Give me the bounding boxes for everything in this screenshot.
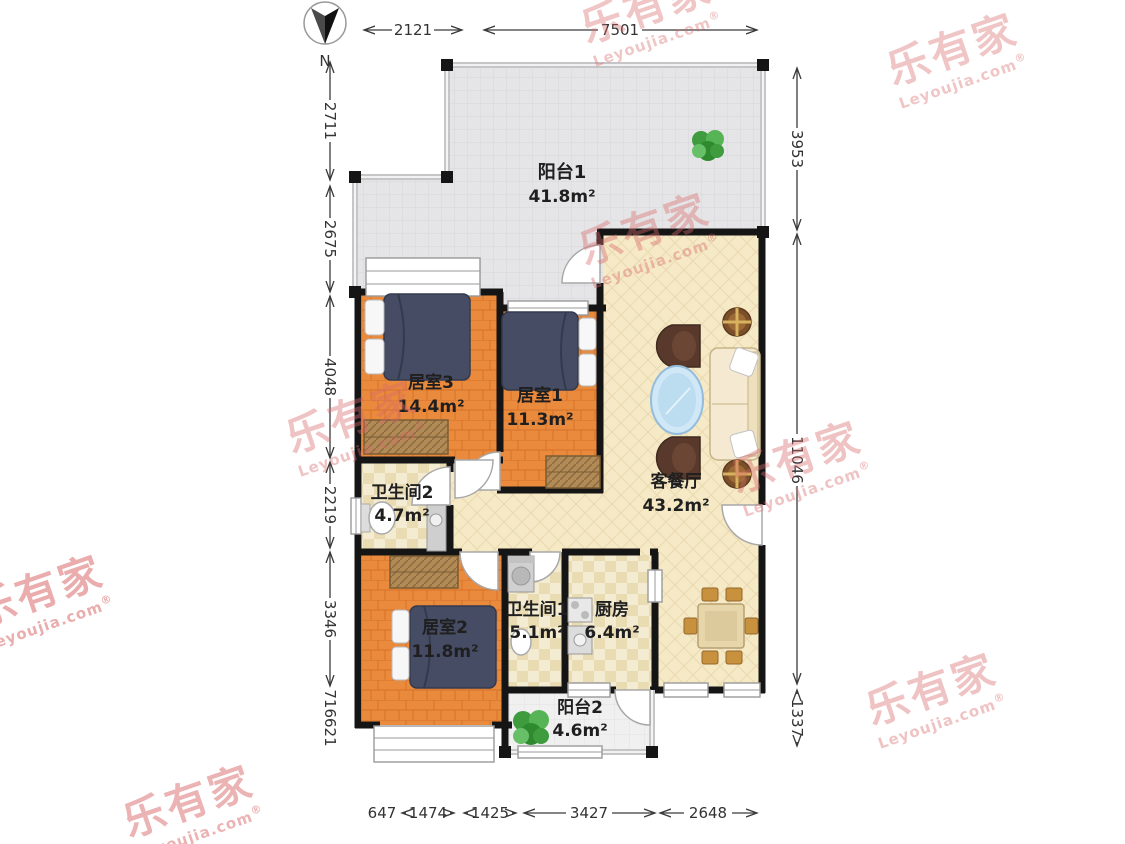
room-area: 4.6m² xyxy=(552,721,607,741)
compass-icon xyxy=(304,2,346,44)
dim-label: 4048 xyxy=(321,358,339,396)
side-table xyxy=(723,308,751,336)
potted-plant-icon xyxy=(513,710,549,745)
dining-chair xyxy=(702,651,718,664)
window xyxy=(648,570,662,602)
dim-label: 3953 xyxy=(788,130,806,168)
dim-label: 716621 xyxy=(321,689,339,746)
room-area: 6.4m² xyxy=(584,623,639,643)
armchair xyxy=(657,325,700,367)
window xyxy=(518,746,602,758)
window xyxy=(664,683,708,697)
room-area: 41.8m² xyxy=(528,187,595,207)
sofa xyxy=(710,347,760,460)
dim-label: 3427 xyxy=(570,804,608,822)
room-area: 11.3m² xyxy=(506,410,573,430)
bay-window xyxy=(366,258,480,296)
bathroom-vanity xyxy=(427,505,446,551)
floorplan-page: N 2121 7501 2711 2675 4048 2219 3346 716… xyxy=(0,0,1125,844)
dim-label: 2219 xyxy=(321,486,339,524)
dim-label: 1425 xyxy=(471,804,509,822)
window xyxy=(568,683,610,697)
dining-chair xyxy=(684,618,697,634)
floorplan-drawing: N 2121 7501 2711 2675 4048 2219 3346 716… xyxy=(0,0,1125,844)
room-name: 卫生间1 xyxy=(506,599,569,620)
dimensions-left: 2711 2675 4048 2219 3346 716621 xyxy=(321,62,339,747)
room-area: 11.8m² xyxy=(411,642,478,662)
side-table xyxy=(723,460,751,488)
dim-label: 2121 xyxy=(394,21,432,39)
dim-label: 7501 xyxy=(601,21,639,39)
room-area: 5.1m² xyxy=(509,623,564,643)
dim-label: 11046 xyxy=(788,436,806,484)
room-area: 43.2m² xyxy=(642,496,709,516)
dim-label: 2711 xyxy=(321,102,339,140)
dimensions-top: 2121 7501 xyxy=(364,21,757,39)
dining-chair xyxy=(726,588,742,601)
dim-label: 647 xyxy=(368,804,397,822)
north-label: N xyxy=(319,52,330,70)
dim-label: 1474 xyxy=(409,804,447,822)
dimensions-bottom: 647 1474 1425 3427 2648 xyxy=(368,804,757,822)
wardrobe xyxy=(390,556,458,588)
room-name: 阳台2 xyxy=(557,697,603,718)
room-area: 4.7m² xyxy=(374,506,429,526)
window xyxy=(351,498,361,534)
dining-chair xyxy=(726,651,742,664)
dim-label: 3346 xyxy=(321,600,339,638)
room-name: 客餐厅 xyxy=(650,471,702,492)
wardrobe xyxy=(364,420,448,454)
potted-plant-icon xyxy=(692,130,724,161)
room-name: 居室1 xyxy=(517,385,563,406)
room-name: 居室2 xyxy=(422,617,468,638)
stove xyxy=(568,598,592,622)
dim-label: 2675 xyxy=(321,220,339,258)
wardrobe xyxy=(546,456,600,488)
dimensions-right: 3953 11046 1337 xyxy=(788,68,806,746)
washing-machine xyxy=(508,556,534,592)
coffee-table xyxy=(651,366,703,434)
dining-chair xyxy=(745,618,758,634)
dining-chair xyxy=(702,588,718,601)
room-name: 厨房 xyxy=(595,599,629,620)
room-name: 卫生间2 xyxy=(371,482,434,503)
dim-label: 2648 xyxy=(689,804,727,822)
dim-label: 1337 xyxy=(788,699,806,737)
window xyxy=(724,683,760,697)
room-name: 阳台1 xyxy=(538,161,587,183)
room-area: 14.4m² xyxy=(397,397,464,417)
room-name: 居室3 xyxy=(408,372,454,393)
bay-window xyxy=(374,726,494,762)
